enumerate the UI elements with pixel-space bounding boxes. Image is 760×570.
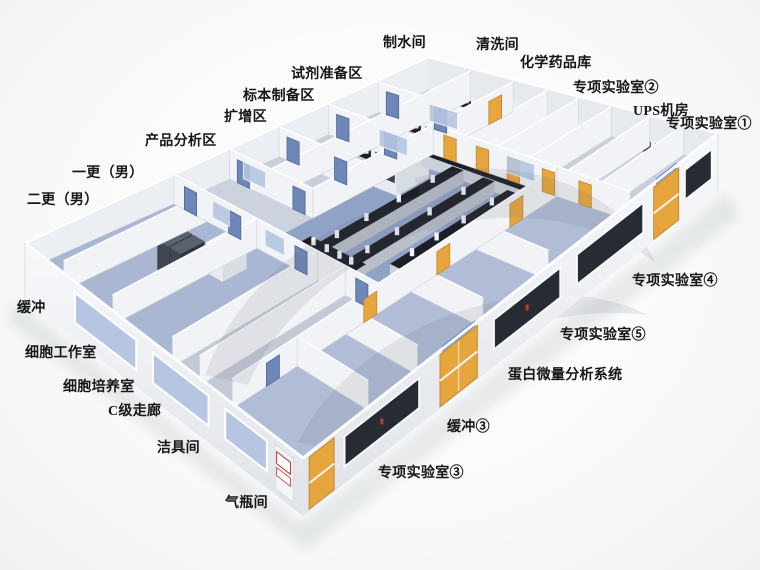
label-cleaning-tool-room: 洁具间 [157,441,200,457]
label-special-lab-5: 专项实验室⑤ [560,328,646,344]
label-cell-culture-room: 细胞培养室 [63,380,135,396]
label-cleaning-room: 清洗间 [476,38,519,54]
label-special-lab-1: 专项实验室① [666,117,752,133]
label-change-room-2-male: 二更（男） [27,193,99,209]
label-chemical-storage: 化学药品库 [520,56,592,72]
label-amplification-area: 扩增区 [224,110,267,126]
label-special-lab-3: 专项实验室③ [378,466,464,482]
label-protein-micro-analysis-system: 蛋白微量分析系统 [508,368,622,384]
label-special-lab-4: 专项实验室④ [632,274,718,290]
label-reagent-prep-area: 试剂准备区 [291,67,363,83]
label-cell-work-room: 细胞工作室 [25,346,97,362]
lab-floorplan-rendering: 制水间 清洗间 化学药品库 专项实验室② UPS机房 专项实验室① 试剂准备区 … [0,0,760,570]
label-buffer: 缓冲 [17,301,46,317]
label-product-analysis-area: 产品分析区 [145,134,217,150]
label-change-room-1-male: 一更（男） [72,166,144,182]
label-water-production-room: 制水间 [383,36,426,52]
label-buffer-3: 缓冲③ [447,420,490,436]
label-specimen-prep-area: 标本制备区 [243,89,315,105]
label-class-c-corridor: C级走廊 [108,404,161,420]
label-special-lab-2: 专项实验室② [573,81,659,97]
label-gas-cylinder-room: 气瓶间 [225,496,268,512]
